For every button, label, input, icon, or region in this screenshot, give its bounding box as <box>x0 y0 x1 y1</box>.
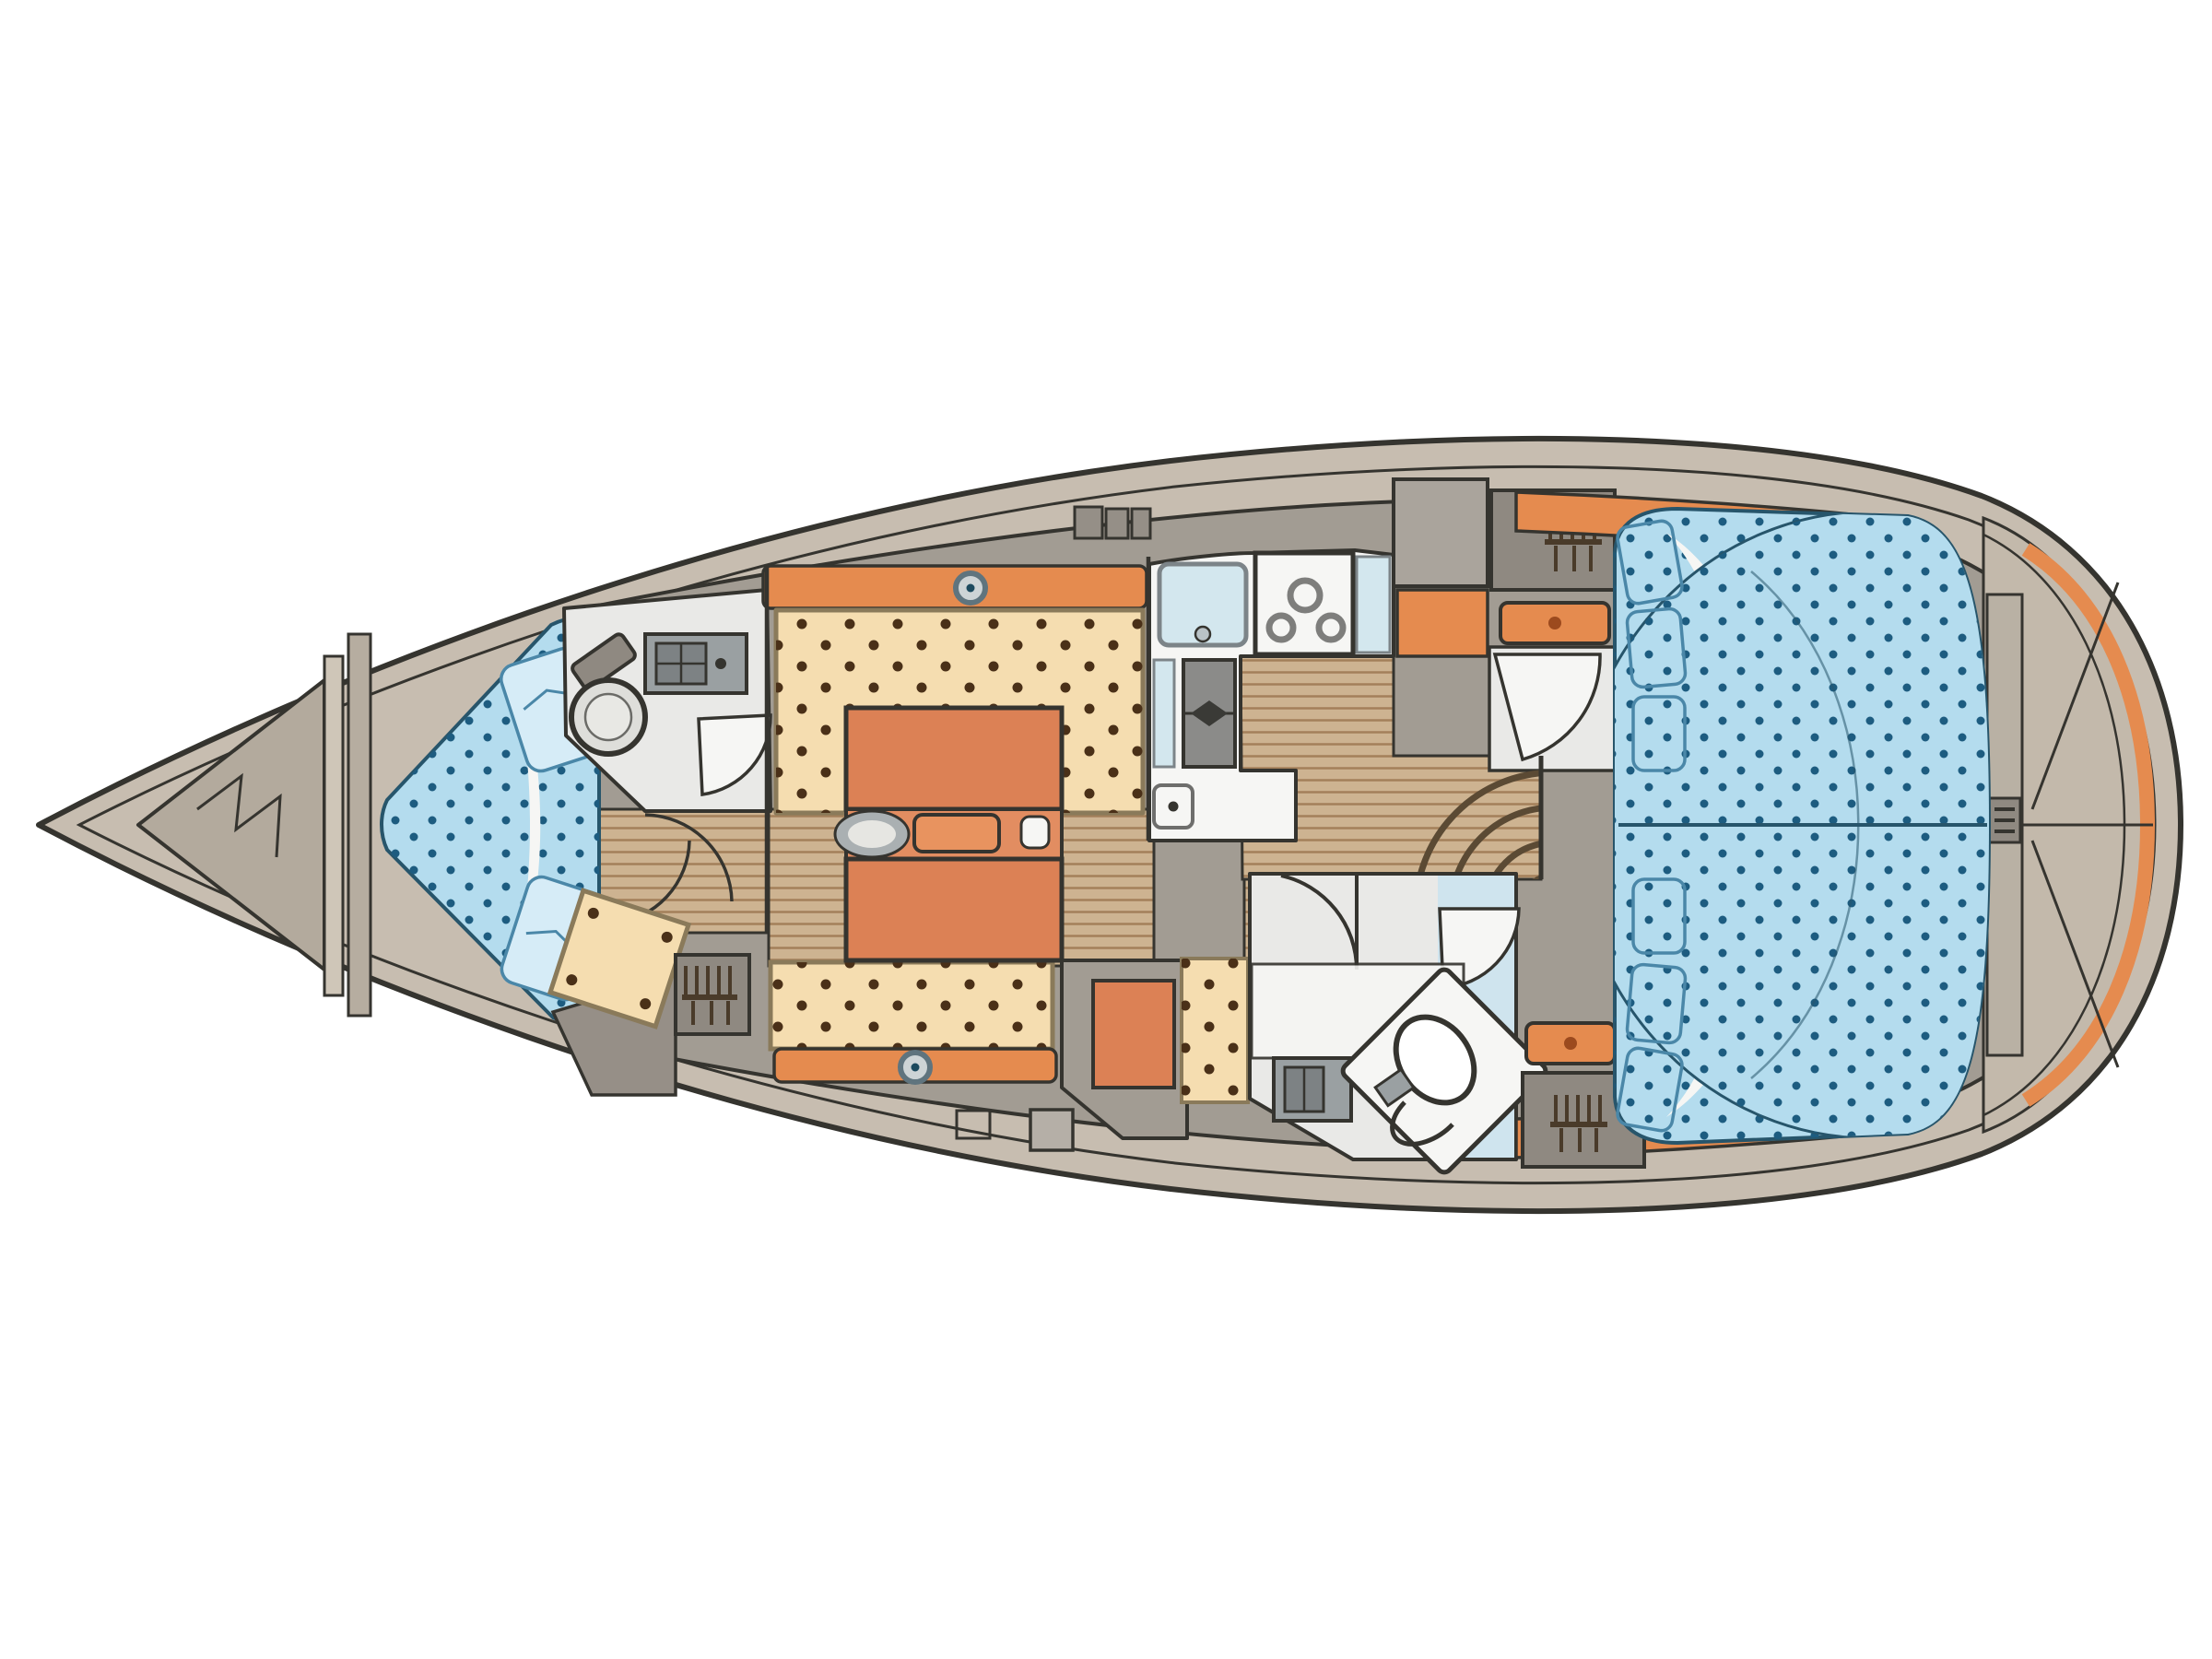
galley-stove <box>1255 553 1353 654</box>
table-latch <box>1021 817 1049 848</box>
aft-drawer-bottom <box>1526 1023 1615 1064</box>
forward-head-vanity-sink <box>645 634 747 693</box>
table-leaf-forward <box>846 708 1062 809</box>
aft-drawer-top <box>1500 603 1609 643</box>
aft-cabin-entry <box>1489 647 1618 771</box>
anchor-locker <box>138 634 371 1016</box>
anchor-locker-triangle <box>138 680 324 970</box>
nav-seat-cushion-dots <box>1182 959 1248 1102</box>
table-bottle-holder-inner <box>848 820 896 848</box>
table-leaf-aft <box>846 859 1062 960</box>
saloon-speaker-port <box>956 573 985 603</box>
saloon-bottom-settee-dots <box>771 962 1053 1049</box>
bow-bulkhead-1 <box>324 656 343 995</box>
side-step-locker <box>1030 1110 1073 1150</box>
galley-bin-sink <box>1154 785 1193 828</box>
forward-wardrobe <box>676 955 749 1034</box>
companionway-cabinet-orange <box>1397 590 1488 656</box>
saloon-folding-table <box>835 708 1062 960</box>
yacht-floorplan-diagram <box>0 0 2212 1659</box>
deck-block <box>1132 509 1150 538</box>
galley-counter-end <box>1357 557 1390 653</box>
deck-block <box>1106 509 1128 538</box>
deck-block <box>1075 507 1102 538</box>
galley-fridge <box>1183 660 1235 767</box>
bow-bulkhead-2 <box>348 634 371 1016</box>
table-handle <box>914 815 999 852</box>
yacht-floorplan-page <box>0 0 2212 1659</box>
nav-table-top <box>1093 981 1174 1088</box>
stern-latch <box>1989 798 2020 842</box>
aft-cabinet-light <box>1394 479 1488 586</box>
galley-faucet <box>1195 627 1210 641</box>
transom-stern <box>1983 518 2153 1132</box>
saloon-speaker-port <box>900 1053 930 1082</box>
galley-side-shelf <box>1154 660 1174 767</box>
